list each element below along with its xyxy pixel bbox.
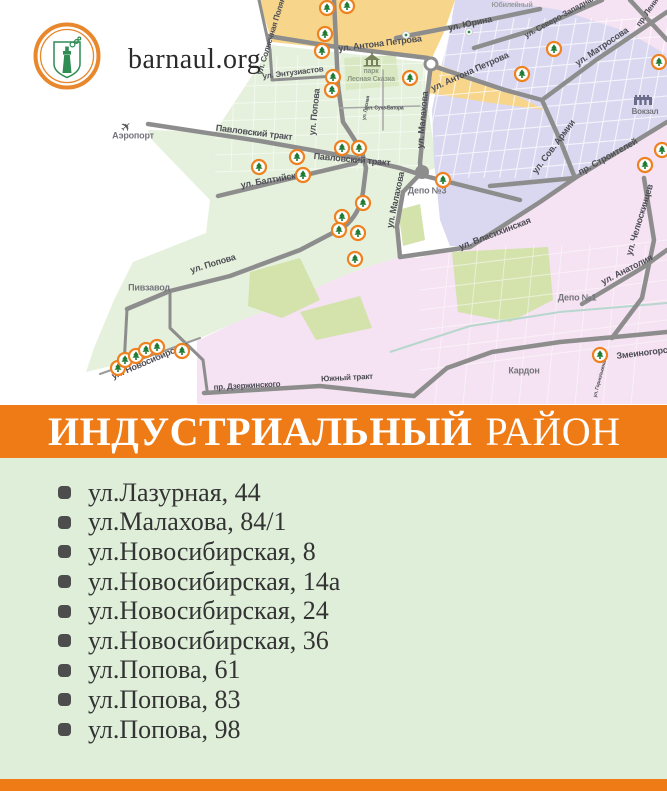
shelter-marker-icon bbox=[150, 340, 164, 354]
shelter-marker-icon bbox=[356, 196, 370, 210]
shelter-marker-icon bbox=[296, 168, 310, 182]
address-item: ул.Попова, 83 bbox=[58, 685, 667, 715]
street-label: ул. Сухэ-Батора bbox=[367, 105, 404, 111]
site-name: barnaul.org bbox=[128, 44, 261, 76]
shelter-marker-icon bbox=[320, 1, 334, 15]
bullet-icon bbox=[58, 516, 71, 529]
poi-label: Кардон bbox=[508, 365, 539, 375]
address-text: ул.Попова, 83 bbox=[88, 685, 241, 715]
shelter-marker-icon bbox=[652, 55, 666, 69]
shelter-marker-icon bbox=[515, 67, 529, 81]
shelter-marker-icon bbox=[593, 348, 607, 362]
shelter-marker-icon bbox=[547, 42, 561, 56]
poi-label: парк bbox=[363, 68, 379, 75]
address-text: ул.Попова, 98 bbox=[88, 715, 241, 745]
shelter-marker-icon bbox=[348, 252, 362, 266]
address-list-section: ул.Лазурная, 44ул.Малахова, 84/1ул.Новос… bbox=[0, 458, 667, 779]
address-item: ул.Новосибирская, 8 bbox=[58, 537, 667, 567]
address-item: ул.Новосибирская, 14а bbox=[58, 567, 667, 597]
address-text: ул.Новосибирская, 14а bbox=[88, 567, 340, 597]
district-banner: ИНДУСТРИАЛЬНЫЙ РАЙОН bbox=[0, 405, 667, 458]
address-item: ул.Малахова, 84/1 bbox=[58, 508, 667, 538]
barnaul-logo bbox=[32, 21, 102, 91]
bullet-icon bbox=[58, 575, 71, 588]
address-item: ул.Новосибирская, 36 bbox=[58, 626, 667, 656]
shelter-marker-icon bbox=[315, 44, 329, 58]
bullet-icon bbox=[58, 693, 71, 706]
address-text: ул.Новосибирская, 36 bbox=[88, 626, 329, 656]
poi-label: Депо №1 bbox=[558, 292, 597, 302]
address-text: ул.Малахова, 84/1 bbox=[88, 507, 286, 537]
map-section: ✈ ул. Солнечная Полянаул. Антона Петрова… bbox=[0, 0, 667, 405]
address-text: ул.Новосибирская, 8 bbox=[88, 537, 316, 567]
shelter-marker-icon bbox=[335, 141, 349, 155]
poi-label: Юбилейный bbox=[491, 1, 532, 9]
shelter-marker-icon bbox=[332, 223, 346, 237]
poi-label: Вокзал bbox=[632, 107, 659, 116]
address-text: ул.Лазурная, 44 bbox=[88, 478, 261, 508]
poi-label: Аэропорт bbox=[112, 130, 154, 140]
bullet-icon bbox=[58, 664, 71, 677]
bullet-icon bbox=[58, 486, 71, 499]
address-item: ул.Лазурная, 44 bbox=[58, 478, 667, 508]
district-poster: ✈ ул. Солнечная Полянаул. Антона Петрова… bbox=[0, 0, 667, 791]
address-text: ул.Попова, 61 bbox=[88, 655, 241, 685]
bullet-icon bbox=[58, 723, 71, 736]
shelter-marker-icon bbox=[335, 210, 349, 224]
bullet-icon bbox=[58, 545, 71, 558]
address-text: ул.Новосибирская, 24 bbox=[88, 596, 329, 626]
shelter-marker-icon bbox=[318, 27, 332, 41]
shelter-marker-icon bbox=[175, 344, 189, 358]
roundabout-antona-petrova bbox=[425, 58, 437, 70]
address-item: ул.Новосибирская, 24 bbox=[58, 596, 667, 626]
shelter-marker-icon bbox=[290, 150, 304, 164]
address-list: ул.Лазурная, 44ул.Малахова, 84/1ул.Новос… bbox=[58, 478, 667, 744]
shelter-marker-icon bbox=[638, 158, 652, 172]
shelter-marker-icon bbox=[352, 141, 366, 155]
shelter-marker-icon bbox=[403, 71, 417, 85]
district-suffix: РАЙОН bbox=[485, 408, 620, 455]
address-item: ул.Попова, 98 bbox=[58, 715, 667, 745]
shelter-marker-icon bbox=[252, 160, 266, 174]
footer-bar bbox=[0, 779, 667, 791]
address-item: ул.Попова, 61 bbox=[58, 656, 667, 686]
shelter-marker-icon bbox=[351, 226, 365, 240]
junction-pavlovsky-malakhova bbox=[415, 165, 429, 179]
shelter-marker-icon bbox=[326, 70, 340, 84]
bullet-icon bbox=[58, 605, 71, 618]
district-name: ИНДУСТРИАЛЬНЫЙ bbox=[48, 408, 472, 455]
shelter-marker-icon bbox=[436, 173, 450, 187]
shelter-marker-icon bbox=[340, 0, 354, 13]
shelter-marker-icon bbox=[655, 143, 667, 157]
bullet-icon bbox=[58, 634, 71, 647]
poi-label: Лесная Сказка bbox=[347, 76, 395, 83]
poi-label: Пивзавод bbox=[128, 282, 170, 292]
shelter-marker-icon bbox=[325, 83, 339, 97]
